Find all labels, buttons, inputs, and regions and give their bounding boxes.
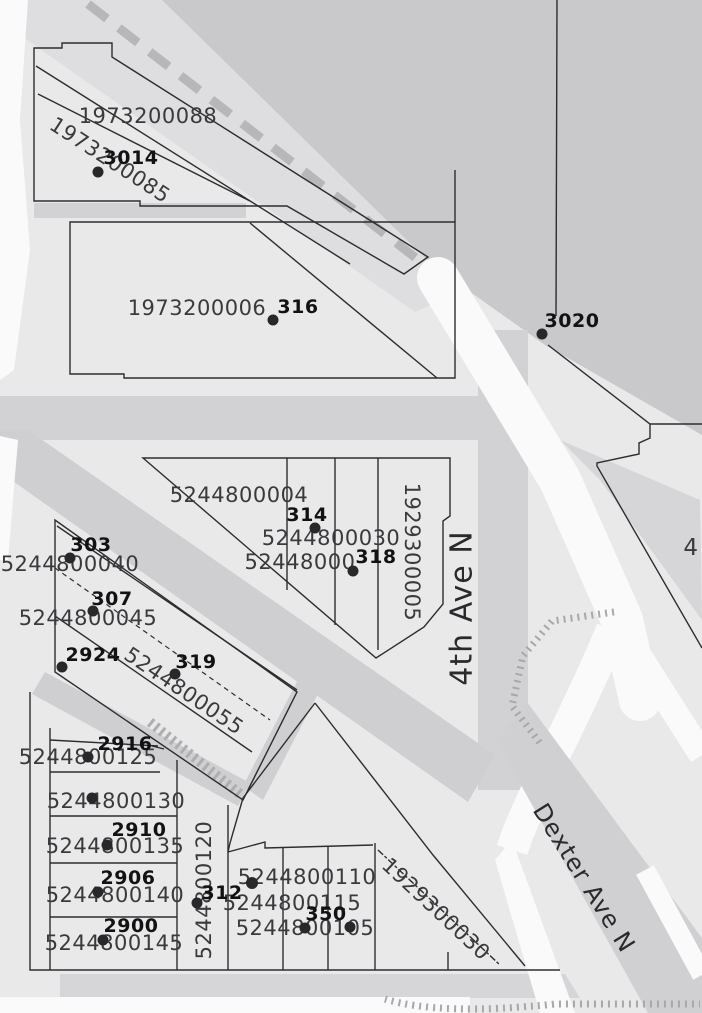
parcel-label-1929300005: 1929300005	[400, 483, 424, 622]
address-label-3020: 3020	[545, 310, 600, 332]
parcel-label-1973200006: 1973200006	[128, 296, 267, 320]
address-marker-350[interactable]	[345, 922, 356, 933]
bottom-street	[60, 974, 580, 998]
address-label-2900: 2900	[104, 915, 159, 937]
address-label-2910: 2910	[112, 819, 167, 841]
lot-line-3020	[556, 0, 557, 316]
address-marker-2900[interactable]	[98, 935, 109, 946]
address-label-350: 350	[305, 903, 346, 925]
street-label-4th-ave-n: 4th Ave N	[445, 530, 480, 685]
address-marker-316[interactable]	[268, 315, 279, 326]
address-label-3014: 3014	[104, 147, 159, 169]
address-label-318: 318	[355, 546, 396, 568]
parcel-label-1973200088: 1973200088	[79, 104, 218, 128]
address-marker-row-130[interactable]	[87, 793, 98, 804]
address-label-2924: 2924	[66, 644, 121, 666]
address-label-2906: 2906	[101, 867, 156, 889]
parcel-label-5244800130: 5244800130	[47, 789, 186, 813]
address-marker-2916[interactable]	[83, 752, 94, 763]
address-label-307: 307	[91, 588, 132, 610]
address-marker-303[interactable]	[65, 553, 76, 564]
cross-street	[0, 396, 478, 440]
address-label-314: 314	[286, 504, 327, 526]
address-marker-2906[interactable]	[93, 887, 104, 898]
address-label-2916: 2916	[98, 733, 153, 755]
address-label-303: 303	[70, 534, 111, 556]
address-marker-319[interactable]	[170, 669, 181, 680]
address-marker-3014[interactable]	[93, 167, 104, 178]
address-marker-307[interactable]	[88, 606, 99, 617]
map-canvas[interactable]: 1973200088 1973200085 1973200006 5244800…	[0, 0, 702, 1013]
parcel-label-5244800110: 5244800110	[238, 865, 377, 889]
address-marker-2924[interactable]	[57, 662, 68, 673]
parcel-label-partial-right: 4	[683, 535, 698, 561]
plat-map[interactable]: 1973200088 1973200085 1973200006 5244800…	[0, 0, 702, 1013]
parcel-label-52448000xx: 52448000	[245, 550, 356, 574]
address-label-312: 312	[201, 882, 242, 904]
address-label-319: 319	[175, 651, 216, 673]
address-marker-2910[interactable]	[102, 840, 113, 851]
address-label-316: 316	[277, 296, 318, 318]
address-marker-lot-105[interactable]	[300, 923, 311, 934]
address-marker-314[interactable]	[310, 523, 321, 534]
address-marker-312[interactable]	[192, 898, 203, 909]
address-marker-3020[interactable]	[537, 329, 548, 340]
address-marker-lot-110[interactable]	[246, 877, 258, 889]
address-marker-318[interactable]	[348, 566, 359, 577]
